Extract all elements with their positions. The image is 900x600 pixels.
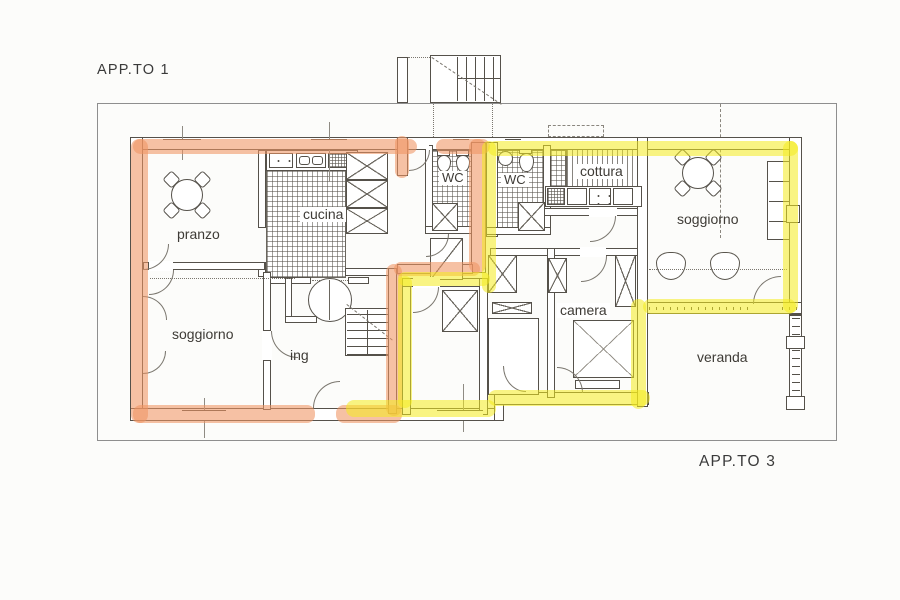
- highlight-appto3: [488, 141, 798, 156]
- dining-table: [171, 179, 203, 211]
- highlight-appto1: [131, 139, 148, 423]
- sink-basin: [299, 156, 310, 165]
- wall-spiral: [285, 316, 317, 323]
- dining-table: [682, 157, 714, 189]
- glazing-marks: [792, 317, 800, 407]
- wall-cucina-bottom: [348, 277, 369, 284]
- wall-room-right: [479, 278, 488, 415]
- highlight-appto3: [398, 272, 490, 286]
- wall-soggiorno-ing: [263, 272, 271, 331]
- sight-line-dotted: [649, 269, 787, 270]
- room-label-wc2: WC: [501, 173, 529, 187]
- cabinet-x: [492, 302, 532, 314]
- room-label-camera: camera: [557, 303, 610, 318]
- cabinet-x: [346, 208, 388, 234]
- dotted-connector: [408, 57, 430, 58]
- room-label-soggiorno-right: soggiorno: [674, 212, 742, 227]
- highlight-appto3: [398, 276, 412, 408]
- highlight-appto3: [346, 400, 496, 417]
- apartment-3-title: APP.TO 3: [699, 453, 776, 471]
- room-label-soggiorno-left: soggiorno: [169, 327, 237, 342]
- room-label-veranda: veranda: [694, 350, 751, 365]
- appliance-icon: [547, 188, 565, 205]
- highlight-appto1: [395, 136, 409, 178]
- highlight-appto3: [643, 299, 796, 314]
- wardrobe-x: [548, 258, 567, 293]
- cabinet-x: [346, 152, 388, 180]
- appliance-icon: [613, 188, 633, 205]
- highlight-appto1: [133, 139, 417, 154]
- wall-soggiorno-ing: [263, 360, 271, 410]
- wall-veranda-glazed: [789, 315, 802, 408]
- stove-icon: [269, 153, 293, 168]
- dotted-connector: [492, 104, 493, 137]
- room-label-cottura: cottura: [577, 164, 626, 179]
- floor-plan-scan: APP.TO 1 APP.TO 3: [0, 0, 900, 600]
- wall-pranzo-bottom: [172, 262, 265, 270]
- stair-rail: [367, 310, 368, 355]
- shower-icon: [432, 203, 458, 231]
- glazing-post: [786, 396, 805, 410]
- cucina-tile-floor: [266, 170, 346, 278]
- highlight-appto3: [488, 390, 650, 406]
- room-label-cucina: cucina: [300, 207, 346, 222]
- dashed-overhang: [548, 125, 604, 137]
- wardrobe-x: [615, 255, 636, 307]
- highlight-appto1: [133, 405, 315, 423]
- highlight-appto3: [783, 141, 798, 313]
- dotted-connector: [433, 104, 434, 137]
- sink-icon: [296, 153, 326, 168]
- stove-icon: [589, 188, 611, 205]
- room-label-wc1: WC: [439, 171, 467, 185]
- stairwell-wall: [397, 57, 408, 103]
- room-label-ing: ing: [287, 348, 312, 363]
- bed: [573, 320, 634, 378]
- cabinet-x: [346, 180, 388, 208]
- apartment-1-title: APP.TO 1: [97, 62, 170, 78]
- wardrobe-x: [442, 290, 478, 332]
- sink-basin: [312, 156, 323, 165]
- wall-pranzo-cucina: [258, 150, 266, 228]
- glazing-post: [786, 336, 805, 349]
- appliance-icon: [567, 188, 587, 205]
- spiral-stair-line: [329, 280, 330, 320]
- highlight-appto3: [482, 141, 496, 293]
- shower-icon: [518, 202, 545, 231]
- room-label-pranzo: pranzo: [174, 227, 223, 242]
